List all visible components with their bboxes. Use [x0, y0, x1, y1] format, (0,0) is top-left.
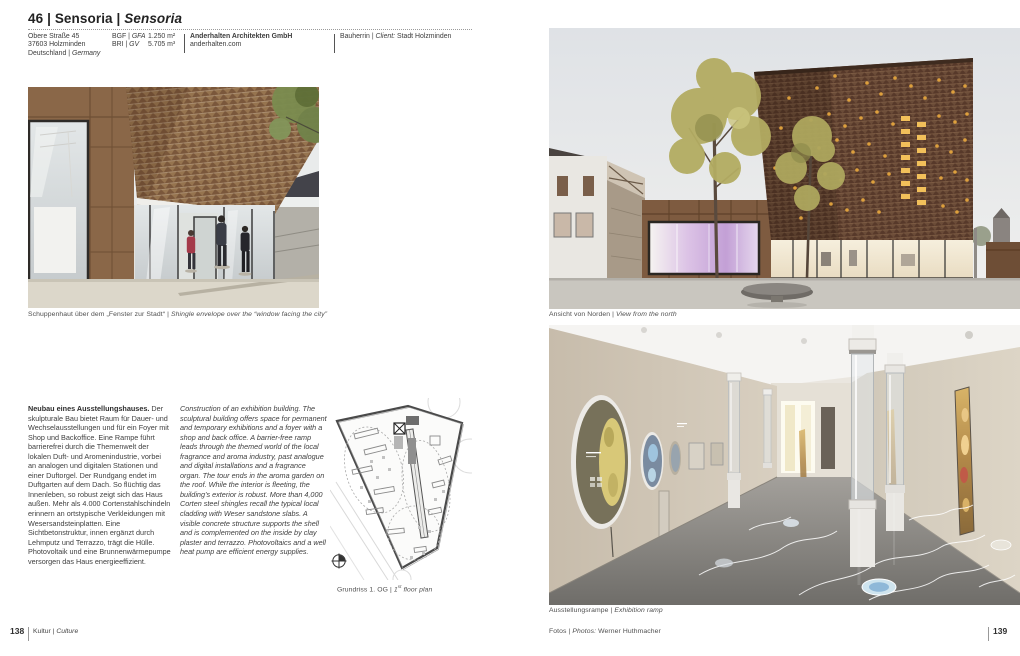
glass-ground-floor	[771, 240, 973, 278]
footer-divider-left	[28, 627, 29, 641]
title-rule	[28, 29, 472, 30]
project-metrics: BGF | GFA 1.250 m² BRI | GV 5.705 m³	[112, 33, 182, 50]
plaza	[549, 278, 1020, 309]
english-lead: Construction of an exhibition building.	[180, 404, 301, 413]
book-spread: 46 | Sensoria | Sensoria Obere Straße 45…	[0, 0, 1020, 656]
body-text-german: Neubau eines Ausstellungshauses. Der sku…	[28, 404, 171, 566]
ramp-photo-caption: Ausstellungsrampe | Exhibition ramp	[549, 607, 663, 614]
photo-credit: Fotos | Photos: Werner Huthmacher	[549, 628, 661, 635]
project-number: 46	[28, 11, 43, 26]
body-text-english: Construction of an exhibition building. …	[180, 404, 327, 557]
address-street: Obere Straße 45	[28, 33, 110, 41]
client-block: Bauherrin | Client: Stadt Holzminden	[340, 33, 470, 41]
project-title-de: Sensoria	[55, 11, 113, 26]
metric-gfa-value: 1.250 m²	[148, 33, 175, 41]
architect-website: anderhalten.com	[190, 41, 330, 49]
footer-divider-right	[988, 627, 989, 641]
metric-gv: BRI | GV 5.705 m³	[112, 41, 182, 49]
address-country: Deutschland | Germany	[28, 50, 110, 58]
client-name: Stadt Holzminden	[397, 33, 451, 40]
architect-name: Anderhalten Architekten GmbH	[190, 33, 330, 41]
header-divider-1	[184, 34, 185, 53]
project-title-en: Sensoria	[124, 11, 182, 26]
page-number-left: 138	[10, 626, 24, 636]
interior-ramp-photo	[549, 325, 1020, 605]
floor-plan-drawing	[330, 398, 472, 580]
address-city: 37603 Holzminden	[28, 41, 110, 49]
shingle-facade	[754, 58, 973, 240]
north-facade-photo	[549, 28, 1020, 309]
street-photo-caption: Schuppenhaut über dem „Fenster zur Stadt…	[28, 311, 327, 318]
street-view-photo	[28, 87, 319, 308]
project-title: 46 | Sensoria | Sensoria	[28, 11, 182, 26]
photographer-name: Werner Huthmacher	[598, 628, 661, 635]
ground-floor-glazing	[135, 205, 275, 283]
project-address: Obere Straße 45 37603 Holzminden Deutsch…	[28, 33, 110, 58]
separator: |	[117, 11, 121, 26]
north-arrow-icon	[332, 554, 347, 569]
north-photo-caption: Ansicht von Norden | View from the north	[549, 311, 677, 318]
section-label: Kultur | Culture	[33, 628, 78, 635]
english-text: The sculptural building offers space for…	[180, 404, 327, 556]
pavement	[28, 274, 319, 308]
metric-gfa: BGF | GFA 1.250 m²	[112, 33, 182, 41]
floor-plan-caption: Grundriss 1. OG | 1st floor plan	[337, 584, 432, 593]
corten-window-frame	[28, 87, 134, 289]
annex-lavender-window	[642, 200, 772, 278]
german-lead: Neubau eines Ausstellungshauses.	[28, 404, 149, 413]
page-number-right: 139	[993, 626, 1007, 636]
header-divider-2	[334, 34, 335, 53]
german-text: Der skulpturale Bau bietet Raum für Daue…	[28, 404, 171, 566]
metric-gv-value: 5.705 m³	[148, 41, 175, 49]
architect-block: Anderhalten Architekten GmbH anderhalten…	[190, 33, 330, 50]
separator: |	[47, 11, 51, 26]
